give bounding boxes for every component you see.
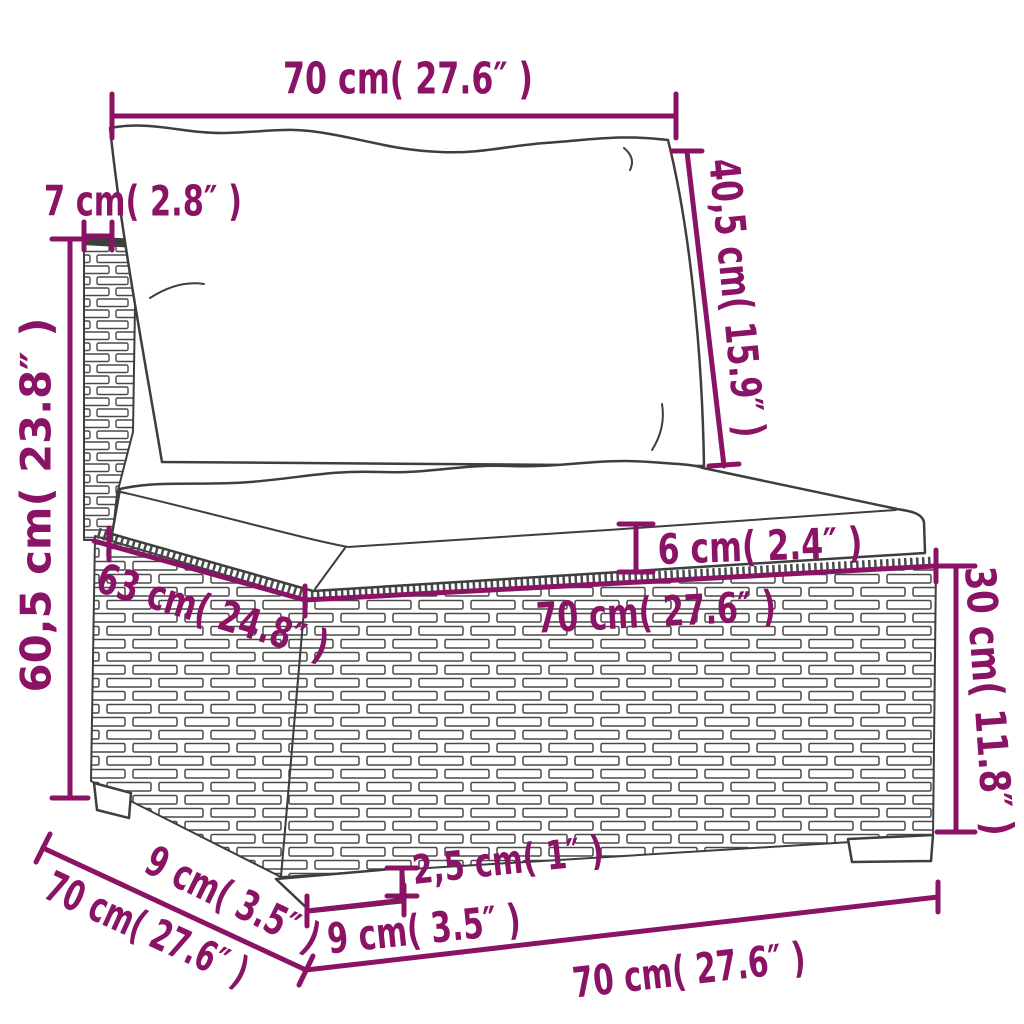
dimension-diagram: 70 cm( 27.6″ ) 40,5 cm( 15.9″ ) 7 cm( 2.… — [0, 0, 1024, 1024]
dim-seat-cushion-thickness-label: 6 cm( 2.4″ ) — [657, 518, 864, 574]
dim-back-cushion-height-label: 40,5 cm( 15.9″ ) — [699, 156, 775, 439]
dim-bottom-width-label: 70 cm( 27.6″ ) — [570, 932, 808, 1007]
dim-base-height-label: 30 cm( 11.8″ ) — [955, 565, 1023, 838]
dim-backrest-thickness-label: 7 cm( 2.8″ ) — [44, 177, 242, 226]
dim-overall-height-label: 60,5 cm( 23.8″ ) — [12, 318, 61, 693]
dim-top-width-label: 70 cm( 27.6″ ) — [283, 54, 533, 105]
front-right-leg — [848, 835, 933, 862]
sofa-section-drawing: 70 cm( 27.6″ ) 40,5 cm( 15.9″ ) 7 cm( 2.… — [0, 0, 1024, 1024]
